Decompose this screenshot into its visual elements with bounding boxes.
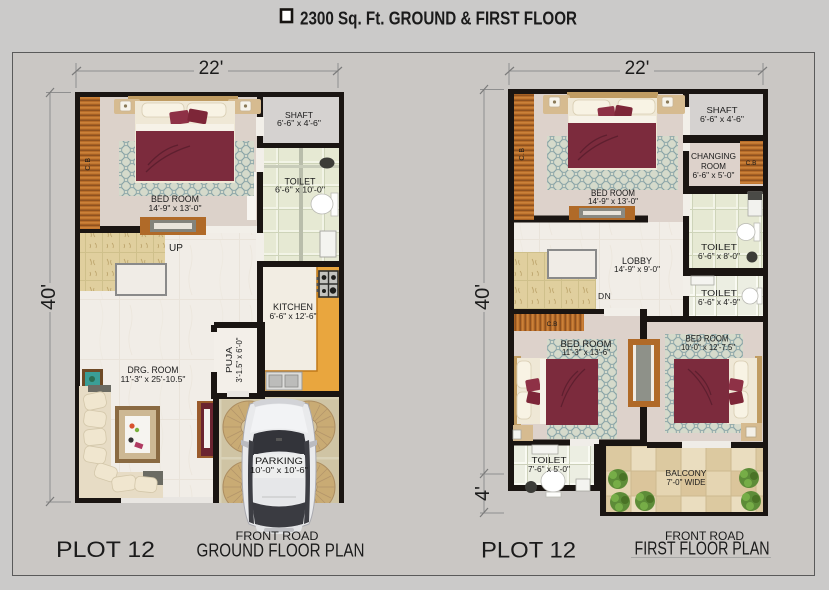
svg-text:6'-6" x 4'-9": 6'-6" x 4'-9" <box>698 298 740 307</box>
svg-text:C.B: C.B <box>547 321 558 328</box>
svg-text:6'-6" x 12'-6": 6'-6" x 12'-6" <box>270 311 317 321</box>
svg-text:14'-9" x 13'-0": 14'-9" x 13'-0" <box>149 203 202 213</box>
svg-text:6'-6" x 8'-0": 6'-6" x 8'-0" <box>698 252 740 261</box>
svg-text:6'-6" x 5'-0": 6'-6" x 5'-0" <box>693 171 735 180</box>
svg-text:7'-0" WIDE: 7'-0" WIDE <box>667 478 706 487</box>
svg-text:10'-0" x 10'-6": 10'-0" x 10'-6" <box>250 465 308 475</box>
svg-text:SHAFT: SHAFT <box>707 105 738 115</box>
svg-text:DN: DN <box>598 291 611 301</box>
svg-text:22': 22' <box>625 58 650 79</box>
svg-text:11'-3" x 25'-10.5": 11'-3" x 25'-10.5" <box>121 374 186 384</box>
svg-text:FIRST FLOOR PLAN: FIRST FLOOR PLAN <box>635 539 770 559</box>
svg-text:C.B: C.B <box>519 147 526 160</box>
svg-text:TOILET: TOILET <box>701 242 737 252</box>
svg-text:14'-9" x 13'-0": 14'-9" x 13'-0" <box>588 196 638 206</box>
svg-text:GROUND FLOOR PLAN: GROUND FLOOR PLAN <box>197 540 365 561</box>
svg-text:2300 Sq. Ft. GROUND & FIRST FL: 2300 Sq. Ft. GROUND & FIRST FLOOR <box>300 9 577 29</box>
svg-text:ROOM: ROOM <box>701 161 726 171</box>
svg-text:6'-6" x 10'-0": 6'-6" x 10'-0" <box>275 185 325 195</box>
svg-text:UP: UP <box>169 243 183 254</box>
svg-text:6'-6" x 4'-6": 6'-6" x 4'-6" <box>700 115 744 124</box>
svg-text:PUJA: PUJA <box>224 347 234 373</box>
svg-text:3'-1.5" x 6'-0": 3'-1.5" x 6'-0" <box>235 337 244 382</box>
svg-text:22': 22' <box>199 58 224 79</box>
svg-text:PLOT 12: PLOT 12 <box>56 537 155 562</box>
svg-text:40': 40' <box>472 284 494 310</box>
svg-text:14'-9" x 9'-0": 14'-9" x 9'-0" <box>614 264 660 274</box>
svg-text:TOILET: TOILET <box>701 288 737 298</box>
svg-text:4': 4' <box>472 486 494 501</box>
svg-text:C.B: C.B <box>746 160 757 167</box>
svg-text:10'-0" x 12'-7.5": 10'-0" x 12'-7.5" <box>681 342 735 352</box>
svg-text:7'-6" x 5'-0": 7'-6" x 5'-0" <box>528 465 570 474</box>
svg-text:6'-6" x 4'-6": 6'-6" x 4'-6" <box>277 119 321 128</box>
svg-text:40': 40' <box>38 284 60 310</box>
svg-text:TOILET: TOILET <box>532 455 567 465</box>
svg-text:PLOT 12: PLOT 12 <box>481 538 576 563</box>
svg-text:CHANGING: CHANGING <box>691 151 736 161</box>
svg-text:C.B: C.B <box>85 157 92 170</box>
svg-text:BALCONY: BALCONY <box>666 468 707 478</box>
svg-text:11'-3" x 13'-6": 11'-3" x 13'-6" <box>562 347 610 357</box>
